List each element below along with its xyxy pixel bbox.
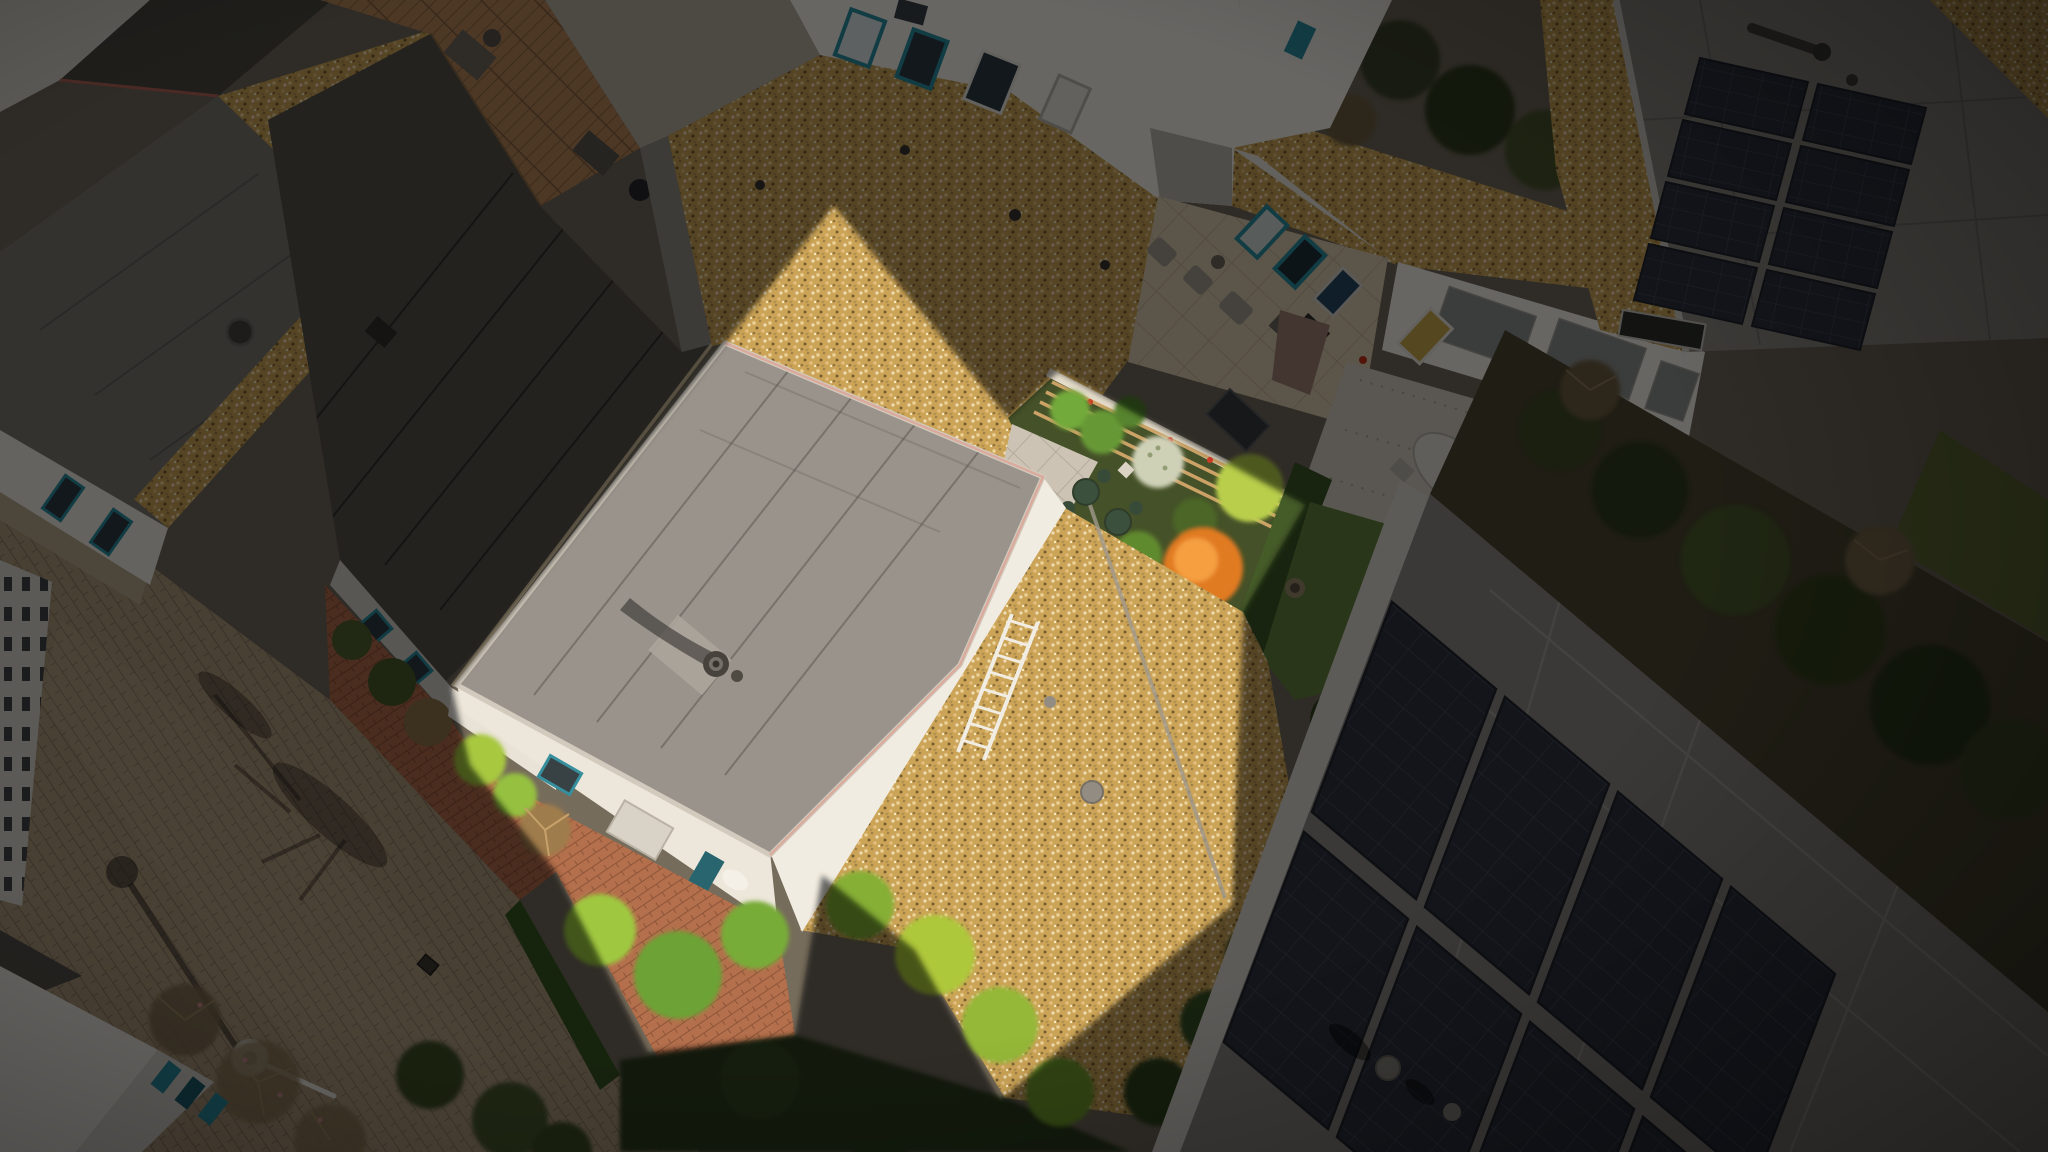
aerial-photo-stage: Aerial drone photo of terraced houses wi… <box>0 0 2048 1152</box>
aerial-photo: Aerial drone photo of terraced houses wi… <box>0 0 2048 1152</box>
vignette <box>0 0 2048 1152</box>
